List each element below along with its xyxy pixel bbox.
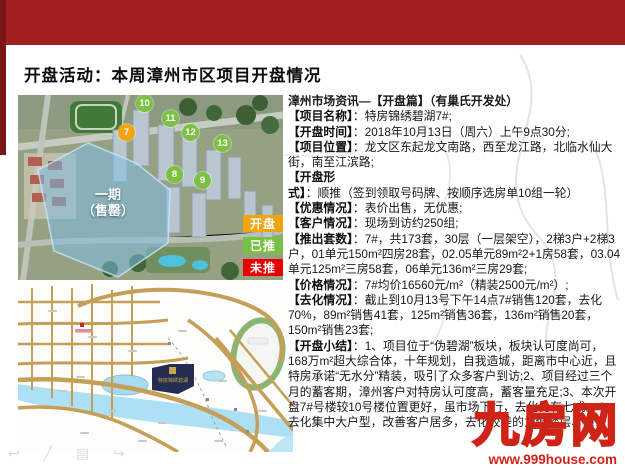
location-map-art: 特房锦绣碧湖 [18, 280, 293, 452]
info-line-project-name: 【项目名称】：特房锦绣碧湖7#; [288, 109, 621, 124]
info-line-absorption: 【去化情况】：截止到10月13号下午14点7#销售120套，去化70%，89m²… [288, 293, 621, 339]
building-marker-9: 9 [194, 172, 211, 189]
watermark-url: www.999house.com [488, 452, 617, 467]
info-line-opening-format: 【开盘形式】：顺推（签到领取号码牌、按顺序选房单10组一轮） [288, 170, 621, 201]
slide-canvas: 开盘活动：本周漳州市区项目开盘情况 [0, 0, 625, 468]
info-line-location: 【项目位置】：龙文区东起龙文南路，西至龙江路，北临水仙大街，南至江滨路; [288, 140, 621, 171]
phase-sold-out-label: 一期 （售罄） [58, 187, 158, 219]
building-marker-7: 7 [118, 124, 135, 141]
info-line-price: 【价格情况】：7#均价16560元/m²（精装2500元/m²）; [288, 278, 621, 293]
info-header: 漳州市场资讯—【开盘篇】（有巢氏开发处） [288, 94, 621, 109]
legend-item-opening: 开盘 [243, 215, 283, 232]
info-line-discount: 【优惠情况】：表价出售，无优惠; [288, 201, 621, 216]
legend-item-not-pushed: 未推 [243, 259, 283, 276]
page-title: 开盘活动：本周漳州市区项目开盘情况 [24, 62, 322, 86]
left-red-stripe [0, 0, 6, 155]
top-red-band [0, 0, 625, 45]
info-line-opening-time: 【开盘时间】：2018年10月13日（周六）上午9点30分; [288, 125, 621, 140]
project-info-panel: 漳州市场资讯—【开盘篇】（有巢氏开发处） 【项目名称】：特房锦绣碧湖7#; 【开… [288, 94, 621, 431]
project-parcel-label: 特房锦绣碧湖 [158, 377, 188, 384]
building-marker-8: 8 [166, 166, 183, 183]
info-line-customers: 【客户情况】：现场到访约250组; [288, 216, 621, 231]
building-marker-10: 10 [136, 95, 153, 112]
aerial-photo: 一期 （售罄） 7 10 11 12 13 8 9 开盘 已推 未推 [18, 95, 283, 281]
info-line-units: 【推出套数】：7#，共173套，30层（一层架空），2梯3户+2梯3户，01单元… [288, 232, 621, 278]
legend-item-pushed: 已推 [243, 237, 283, 254]
building-marker-11: 11 [162, 110, 179, 127]
building-marker-13: 13 [214, 135, 231, 152]
building-marker-12: 12 [182, 124, 199, 141]
watermark-brand: 九房网 [473, 389, 620, 455]
faded-editor-icons: ↩ ╱ ▤ ↪ [8, 445, 135, 462]
location-map: 特房锦绣碧湖 [18, 280, 293, 452]
